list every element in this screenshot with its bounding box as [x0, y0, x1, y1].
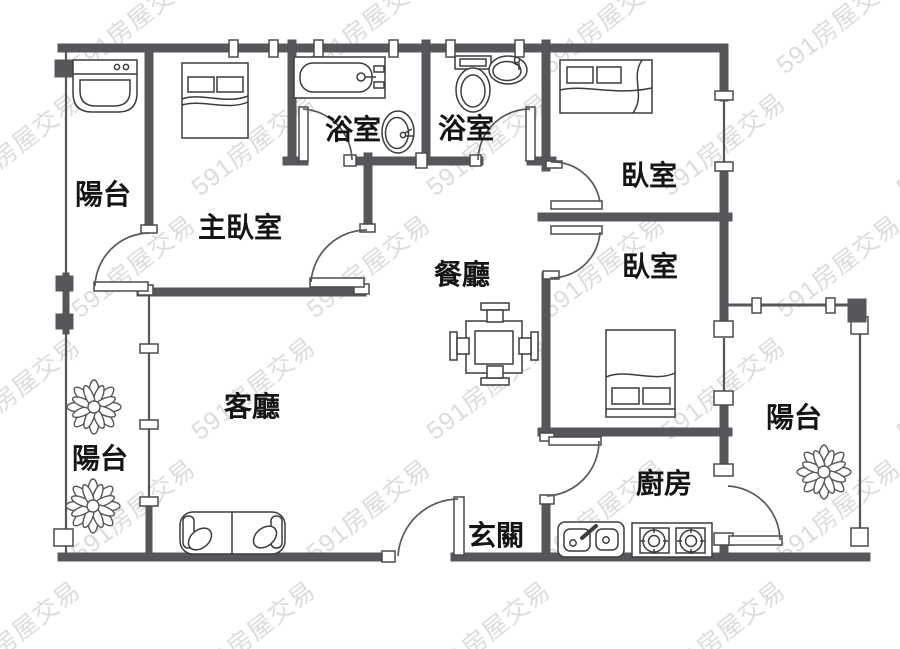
watermark-text: 591房屋交易: [891, 88, 900, 202]
bedroom-top-right-door: [551, 162, 602, 209]
kitchen-door: [547, 437, 601, 496]
toilet: [455, 56, 491, 112]
room-label-bedroom-mid-right: 臥室: [622, 250, 678, 282]
laundry-sink: [73, 60, 137, 112]
kitchen-balcony-door: [728, 486, 782, 545]
double-bed-bedroom2: [606, 330, 675, 417]
sofa: [180, 512, 285, 554]
bathtub: [294, 57, 385, 98]
watermark-text: 591房屋交易: [66, 210, 200, 324]
watermark-text: 591房屋交易: [891, 332, 900, 446]
watermark-text: 591房屋交易: [656, 576, 790, 649]
watermark-text: 591房屋交易: [186, 576, 320, 649]
floor-plan-canvas: 591房屋交易591房屋交易591房屋交易591房屋交易591房屋交易591房屋…: [0, 0, 900, 649]
watermark-text: 591房屋交易: [186, 332, 320, 446]
kitchen-sink: [558, 522, 624, 557]
room-label-bathroom-right: 浴室: [438, 112, 494, 144]
watermark-text: 591房屋交易: [771, 0, 900, 80]
double-bed-master: [182, 63, 248, 138]
room-label-balcony-upper-left: 陽台: [75, 178, 131, 210]
room-label-dining-room: 餐廳: [434, 258, 490, 290]
watermark-text: 591房屋交易: [0, 88, 86, 202]
floor-plan: 591房屋交易591房屋交易591房屋交易591房屋交易591房屋交易591房屋…: [0, 0, 900, 649]
room-label-living-room: 客廳: [224, 390, 280, 422]
room-label-entrance: 玄關: [468, 519, 524, 551]
watermark-text: 591房屋交易: [0, 332, 86, 446]
watermark-text: 591房屋交易: [0, 576, 86, 649]
room-label-balcony-right: 陽台: [766, 401, 822, 433]
entrance-door: [398, 497, 464, 556]
room-label-bedroom-top-right: 臥室: [621, 159, 677, 191]
watermark-text: 591房屋交易: [891, 576, 900, 649]
vanity-sink-right: [489, 56, 527, 84]
single-bed-bedroom1: [560, 60, 652, 113]
gas-stove: [632, 523, 712, 557]
room-label-master-bedroom: 主臥室: [198, 211, 282, 243]
room-label-bathroom-left: 浴室: [325, 113, 381, 145]
room-label-balcony-lower-left: 陽台: [72, 442, 128, 474]
room-label-kitchen: 廚房: [636, 467, 692, 499]
watermark-text: 591房屋交易: [301, 454, 435, 568]
vanity-sink-left: [382, 111, 414, 153]
watermark-text: 591房屋交易: [421, 576, 555, 649]
